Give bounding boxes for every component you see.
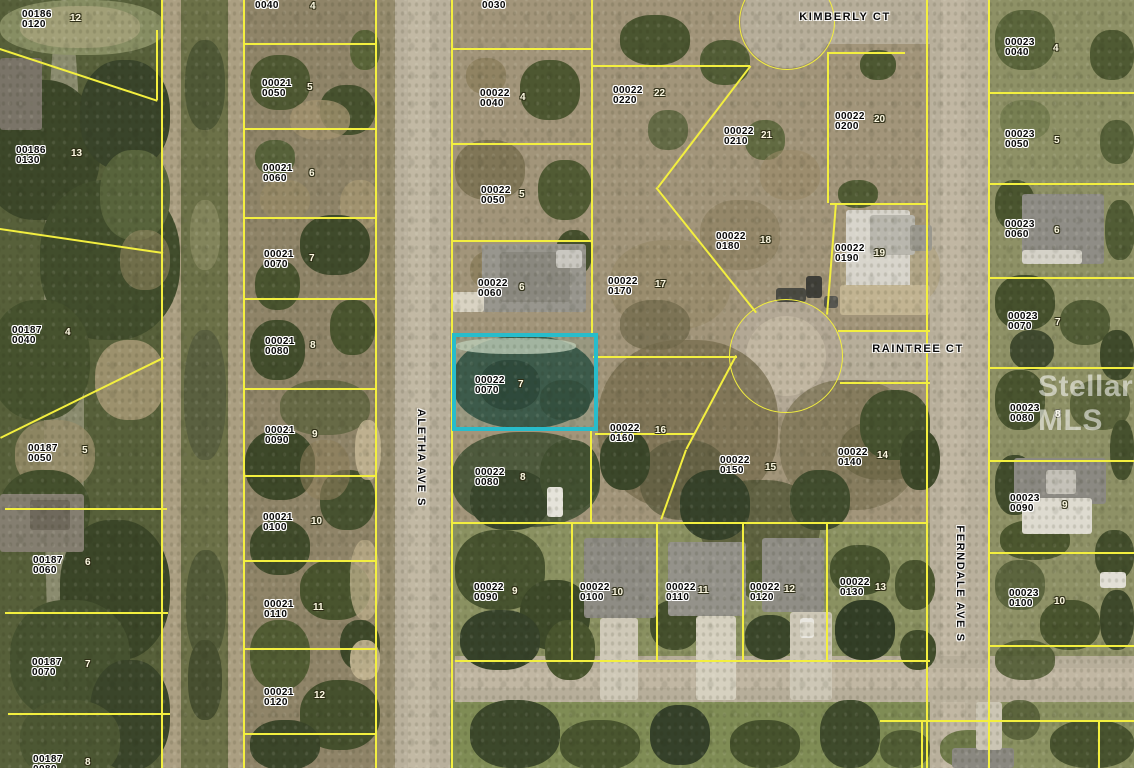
lot-number: 19 bbox=[874, 249, 885, 259]
lot-number: 10 bbox=[311, 517, 322, 527]
parcel-id-label: 0040 bbox=[255, 1, 279, 11]
parcel-id-label: 00022 0220 bbox=[613, 86, 643, 106]
lot-number: 8 bbox=[310, 341, 316, 351]
parcel-id-label: 00022 0090 bbox=[474, 583, 504, 603]
lot-number: 7 bbox=[1055, 318, 1061, 328]
parcel-id-label: 00021 0080 bbox=[265, 337, 295, 357]
lot-number: 7 bbox=[309, 254, 315, 264]
lot-number: 8 bbox=[85, 758, 91, 768]
lot-number: 13 bbox=[875, 583, 886, 593]
parcel-id-label: 00023 0070 bbox=[1008, 312, 1038, 332]
parcel-id-label: 00022 0190 bbox=[835, 244, 865, 264]
parcel-id-label: 00022 0170 bbox=[608, 277, 638, 297]
parcel-id-label: 00187 0050 bbox=[28, 444, 58, 464]
lot-number: 6 bbox=[85, 558, 91, 568]
parcel-id-label: 00023 0060 bbox=[1005, 220, 1035, 240]
parcel-id-label: 00022 0160 bbox=[610, 424, 640, 444]
lot-number: 16 bbox=[655, 426, 666, 436]
lot-number: 4 bbox=[310, 2, 316, 12]
parcel-id-label: 00022 0180 bbox=[716, 232, 746, 252]
lot-number: 6 bbox=[1054, 226, 1060, 236]
street-name-label: KIMBERLY CT bbox=[799, 11, 891, 23]
parcel-id-label: 00186 0130 bbox=[16, 146, 46, 166]
parcel-id-label: 00022 0080 bbox=[475, 468, 505, 488]
lot-number: 21 bbox=[761, 131, 772, 141]
parcel-id-label: 00021 0090 bbox=[265, 426, 295, 446]
lot-number: 9 bbox=[312, 430, 318, 440]
lot-number: 15 bbox=[765, 463, 776, 473]
parcel-id-label: 00022 0150 bbox=[720, 456, 750, 476]
lot-number: 5 bbox=[82, 446, 88, 456]
street-name-label: ALETHA AVE S bbox=[415, 409, 427, 507]
lot-number: 13 bbox=[71, 149, 82, 159]
lot-number: 22 bbox=[654, 89, 665, 99]
parcel-id-label: 00023 0050 bbox=[1005, 130, 1035, 150]
lot-number: 4 bbox=[65, 328, 71, 338]
lot-number: 11 bbox=[313, 603, 324, 613]
lot-number: 5 bbox=[307, 83, 313, 93]
watermark: Stellar MLS bbox=[1038, 370, 1134, 438]
parcel-id-label: 00023 0100 bbox=[1009, 589, 1039, 609]
parcel-id-label: 00022 0110 bbox=[666, 583, 696, 603]
parcel-id-label: 00022 0200 bbox=[835, 112, 865, 132]
parcel-id-label: 00187 0080 bbox=[33, 755, 63, 768]
lot-number: 12 bbox=[314, 691, 325, 701]
aerial-parcel-map: 00186 0120 00186 0130 00187 0040 00187 0… bbox=[0, 0, 1134, 768]
parcel-id-label: 00022 0130 bbox=[840, 578, 870, 598]
lot-number: 14 bbox=[877, 451, 888, 461]
lot-number: 11 bbox=[698, 586, 709, 596]
lot-number: 20 bbox=[874, 115, 885, 125]
parcel-id-label: 00021 0050 bbox=[262, 79, 292, 99]
lot-number: 10 bbox=[612, 588, 623, 598]
lot-number: 9 bbox=[1062, 501, 1068, 511]
parcel-id-label: 00187 0070 bbox=[32, 658, 62, 678]
parcel-id-label: 00022 0070 bbox=[475, 376, 505, 396]
lot-number: 4 bbox=[520, 93, 526, 103]
parcel-id-label: 00022 0100 bbox=[580, 583, 610, 603]
parcel-id-label: 00022 0210 bbox=[724, 127, 754, 147]
parcel-id-label: 00021 0100 bbox=[263, 513, 293, 533]
parcel-id-label: 00023 0040 bbox=[1005, 38, 1035, 58]
parcel-id-label: 00187 0040 bbox=[12, 326, 42, 346]
parcel-id-label: 00022 0140 bbox=[838, 448, 868, 468]
lot-number: 6 bbox=[519, 283, 525, 293]
lot-number: 17 bbox=[655, 280, 666, 290]
parcel-id-label: 00187 0060 bbox=[33, 556, 63, 576]
lot-number: 6 bbox=[309, 169, 315, 179]
lot-number: 18 bbox=[760, 236, 771, 246]
parcel-id-label: 00021 0110 bbox=[264, 600, 294, 620]
street-name-label: RAINTREE CT bbox=[872, 343, 964, 355]
lot-number: 5 bbox=[1054, 136, 1060, 146]
street-name-label: FERNDALE AVE S bbox=[954, 525, 966, 642]
parcel-id-label: 00022 0120 bbox=[750, 583, 780, 603]
parcel-id-label: 0030 bbox=[482, 1, 506, 11]
parcel-id-label: 00023 0080 bbox=[1010, 404, 1040, 424]
lot-number: 8 bbox=[520, 473, 526, 483]
lot-number: 7 bbox=[518, 380, 524, 390]
lot-number: 12 bbox=[784, 585, 795, 595]
parcel-id-label: 00021 0070 bbox=[264, 250, 294, 270]
parcel-id-label: 00023 0090 bbox=[1010, 494, 1040, 514]
lot-number: 7 bbox=[85, 660, 91, 670]
lot-number: 5 bbox=[519, 190, 525, 200]
lot-number: 12 bbox=[70, 14, 81, 24]
parcel-id-label: 00022 0060 bbox=[478, 279, 508, 299]
parcel-id-label: 00021 0060 bbox=[263, 164, 293, 184]
parcel-id-label: 00021 0120 bbox=[264, 688, 294, 708]
parcel-id-label: 00186 0120 bbox=[22, 10, 52, 30]
parcel-id-label: 00022 0040 bbox=[480, 89, 510, 109]
highlighted-parcel[interactable] bbox=[452, 333, 598, 431]
lot-number: 9 bbox=[512, 587, 518, 597]
lot-number: 10 bbox=[1054, 597, 1065, 607]
lot-number: 4 bbox=[1053, 44, 1059, 54]
parcel-id-label: 00022 0050 bbox=[481, 186, 511, 206]
